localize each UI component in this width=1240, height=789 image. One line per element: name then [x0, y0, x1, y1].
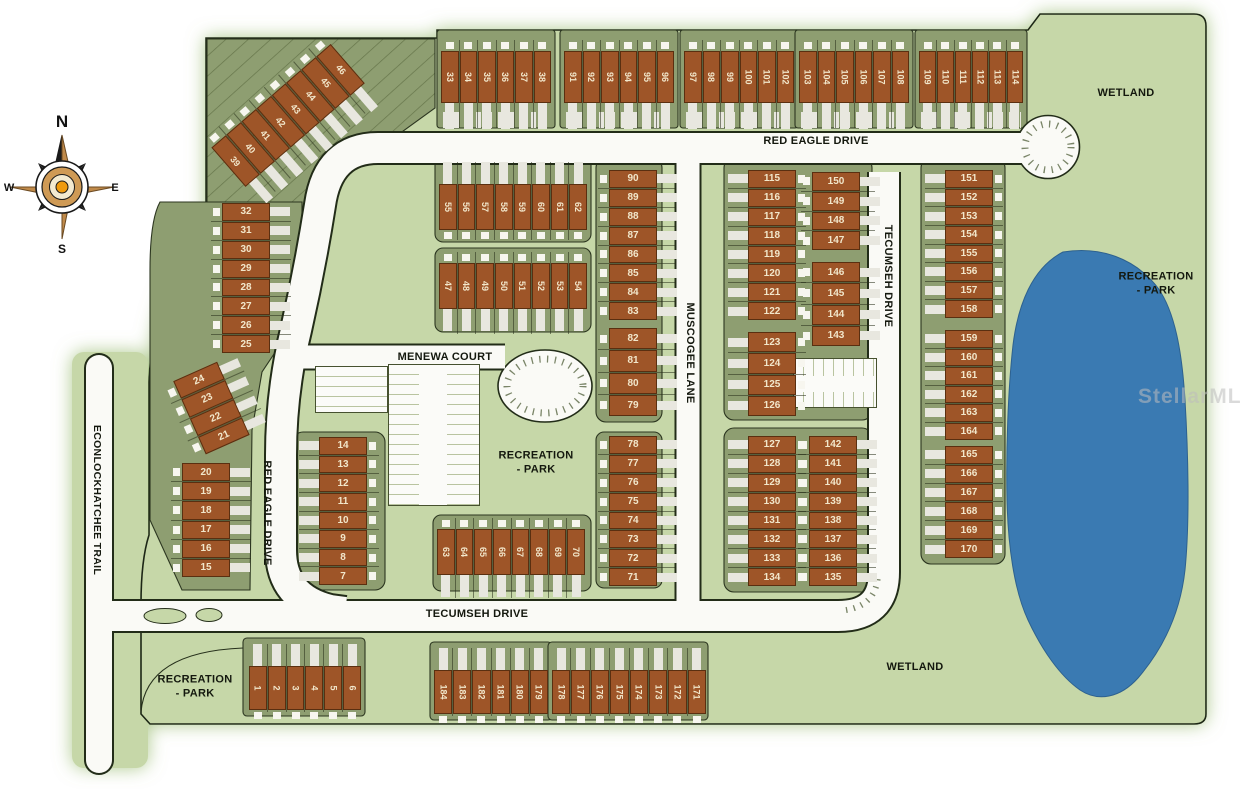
lot-163: 163 — [925, 404, 1003, 423]
lot-parcel: 116 — [748, 189, 796, 207]
lot-88: 88 — [598, 208, 676, 227]
lot-number: 114 — [1010, 70, 1020, 85]
driveway-stub — [728, 307, 748, 316]
lot-number: 157 — [961, 285, 978, 296]
lot-90: 90 — [598, 170, 676, 189]
lot-number: 160 — [961, 352, 978, 363]
driveway-stub — [1010, 103, 1019, 129]
lot-number: 123 — [764, 337, 781, 348]
lot-26: 26 — [211, 316, 291, 335]
lot-147: 147 — [801, 231, 875, 250]
lot-parcel: 70 — [567, 529, 585, 575]
lot-parcel: 140 — [809, 474, 857, 492]
lot-parcel: 126 — [748, 396, 796, 416]
driveway-stub — [227, 377, 249, 393]
lot-number: 29 — [240, 263, 251, 274]
driveway-stub — [725, 103, 734, 129]
utility-pad — [995, 390, 1002, 398]
lot-parcel: 146 — [812, 262, 860, 282]
lot-parcel: 163 — [945, 404, 993, 422]
lot-2: 2 — [268, 644, 287, 712]
street-label-tecumseh-drive-east: TECUMSEH DRIVE — [882, 225, 894, 328]
utility-pad — [446, 42, 454, 49]
driveway-stub — [230, 506, 250, 515]
lot-parcel: 109 — [919, 51, 936, 103]
lot-group-33-38: 333435363738 — [441, 40, 551, 128]
lot-parcel: 19 — [182, 482, 230, 500]
lot-109: 109 — [919, 40, 937, 128]
lot-number: 180 — [515, 684, 525, 699]
lot-parcel: 172 — [668, 670, 686, 714]
area-label-wetland-top: WETLAND — [1097, 87, 1154, 99]
lot-parcel: 35 — [478, 51, 496, 103]
utility-pad — [800, 441, 807, 449]
lot-number: 115 — [764, 173, 780, 184]
compass-east-label: E — [111, 182, 118, 194]
lot-149: 149 — [801, 192, 875, 212]
lot-parcel: 151 — [945, 170, 993, 188]
lot-153: 153 — [925, 207, 1003, 226]
lot-parcel: 159 — [945, 330, 993, 348]
driveway-stub — [925, 353, 945, 362]
driveway-stub — [657, 401, 677, 410]
utility-pad — [213, 283, 220, 291]
lot-number: 159 — [961, 333, 978, 344]
driveway-stub — [803, 103, 812, 129]
lot-166: 166 — [925, 465, 1003, 484]
lot-parcel: 125 — [748, 375, 796, 395]
lot-parcel: 16 — [182, 540, 230, 558]
lot-170: 170 — [925, 540, 1003, 558]
lot-number: 8 — [340, 552, 346, 563]
driveway-stub — [270, 264, 290, 273]
utility-pad — [462, 254, 470, 261]
lot-number: 173 — [653, 684, 663, 699]
lot-72: 72 — [598, 549, 676, 568]
utility-pad — [464, 42, 472, 49]
lot-parcel: 166 — [945, 465, 993, 483]
lot-group-1-6: 123456 — [249, 644, 361, 712]
lot-parcel: 12 — [319, 474, 367, 492]
utility-pad — [822, 42, 830, 49]
lot-168: 168 — [925, 502, 1003, 521]
driveway-stub — [219, 358, 241, 374]
utility-pad — [995, 287, 1002, 295]
lot-parcel: 138 — [809, 512, 857, 530]
utility-pad — [369, 516, 376, 524]
driveway-stub — [925, 427, 945, 436]
utility-pad — [995, 175, 1002, 183]
lot-parcel: 68 — [530, 529, 548, 575]
lot-161: 161 — [925, 367, 1003, 386]
lot-5: 5 — [324, 644, 343, 712]
lot-number: 35 — [482, 72, 492, 82]
lot-number: 73 — [627, 534, 638, 545]
driveway-stub — [925, 334, 945, 343]
lot-parcel: 173 — [649, 670, 667, 714]
lot-group-103-108: 103104105106107108 — [799, 40, 909, 128]
lot-parcel: 67 — [512, 529, 530, 575]
driveway-stub — [654, 648, 663, 670]
lot-number: 136 — [825, 553, 842, 564]
utility-pad — [693, 716, 701, 723]
lot-29: 29 — [211, 260, 291, 279]
driveway-stub — [499, 309, 508, 331]
utility-pad — [516, 520, 524, 527]
lot-parcel: 61 — [551, 184, 569, 230]
lot-number: 90 — [627, 173, 638, 184]
utility-pad — [481, 232, 489, 239]
lot-number: 156 — [961, 266, 978, 277]
lot-number: 59 — [517, 202, 527, 212]
lot-parcel: 105 — [836, 51, 854, 103]
utility-pad — [173, 468, 180, 476]
driveway-stub — [728, 212, 748, 221]
driveway-stub — [536, 162, 545, 184]
lot-parcel: 54 — [569, 263, 587, 309]
lot-parcel: 79 — [609, 395, 657, 416]
lot-number: 126 — [764, 400, 781, 411]
driveway-stub — [538, 103, 547, 129]
utility-pad — [941, 42, 949, 49]
driveway-stub — [925, 267, 945, 276]
lot-178: 178 — [552, 648, 571, 716]
lot-parcel: 56 — [458, 184, 476, 230]
utility-pad — [520, 42, 528, 49]
lot-182: 182 — [472, 648, 491, 716]
lot-63: 63 — [437, 518, 456, 598]
lot-102: 102 — [777, 40, 795, 128]
lot-80: 80 — [598, 373, 676, 395]
utility-pad — [800, 498, 807, 506]
lot-number: 183 — [457, 684, 467, 699]
driveway-stub — [657, 174, 677, 183]
driveway-stub — [860, 268, 880, 277]
utility-pad — [726, 42, 734, 49]
lot-parcel: 131 — [748, 512, 796, 530]
utility-pad — [516, 716, 524, 723]
lot-parcel: 58 — [495, 184, 513, 230]
lot-154: 154 — [925, 226, 1003, 245]
lot-number: 162 — [961, 389, 978, 400]
lot-parcel: 183 — [453, 670, 471, 714]
lot-number: 129 — [764, 477, 781, 488]
utility-pad — [213, 246, 220, 254]
driveway-stub — [299, 516, 319, 525]
lot-parcel: 50 — [495, 263, 513, 309]
lot-82: 82 — [598, 328, 676, 350]
utility-pad — [959, 42, 967, 49]
utility-pad — [213, 227, 220, 235]
lot-number: 17 — [200, 524, 211, 535]
utility-pad — [995, 526, 1002, 534]
driveway-stub — [857, 478, 877, 487]
utility-pad — [538, 42, 546, 49]
lot-parcel: 63 — [437, 529, 455, 575]
lot-3: 3 — [287, 644, 306, 712]
lot-number: 140 — [825, 477, 842, 488]
lot-7: 7 — [299, 567, 379, 585]
driveway-stub — [615, 648, 624, 670]
driveway-stub — [896, 103, 905, 129]
utility-pad — [369, 442, 376, 450]
utility-pad — [600, 307, 607, 315]
lot-parcel: 99 — [721, 51, 739, 103]
utility-pad — [878, 42, 886, 49]
lot-parcel: 117 — [748, 208, 796, 226]
lot-parcel: 8 — [319, 549, 367, 567]
utility-pad — [369, 554, 376, 562]
driveway-stub — [657, 379, 677, 388]
lot-parcel: 93 — [601, 51, 619, 103]
rec-park-line1: RECREATION — [158, 674, 233, 686]
lot-91: 91 — [564, 40, 583, 128]
lot-145: 145 — [801, 283, 875, 304]
lot-75: 75 — [598, 493, 676, 512]
driveway-stub — [348, 644, 357, 666]
lot-number: 54 — [573, 281, 583, 291]
lot-number: 155 — [961, 248, 978, 259]
lot-parcel: 30 — [222, 241, 270, 259]
lot-group-71-78: 7877767574737271 — [598, 436, 676, 586]
lot-number: 106 — [858, 69, 868, 84]
lot-number: 91 — [568, 72, 578, 82]
lot-172: 172 — [668, 648, 687, 716]
lot-110: 110 — [937, 40, 955, 128]
driveway-stub — [925, 212, 945, 221]
driveway-stub — [657, 478, 677, 487]
driveway-stub — [515, 648, 524, 670]
lot-157: 157 — [925, 282, 1003, 301]
lot-61: 61 — [551, 162, 570, 240]
driveway-stub — [568, 103, 577, 129]
lot-number: 33 — [445, 72, 455, 82]
lot-number: 84 — [627, 287, 638, 298]
lot-35: 35 — [478, 40, 497, 128]
driveway-stub — [270, 302, 290, 311]
lot-number: 81 — [627, 355, 638, 366]
driveway-stub — [728, 478, 748, 487]
utility-pad — [995, 193, 1002, 201]
driveway-stub — [728, 535, 748, 544]
driveway-stub — [555, 162, 564, 184]
lot-55: 55 — [439, 162, 458, 240]
street-label-red-eagle-drive-west: RED EAGLE DRIVE — [261, 460, 273, 565]
driveway-stub — [557, 648, 566, 670]
lot-parcel: 154 — [945, 226, 993, 244]
lot-parcel: 97 — [684, 51, 702, 103]
lot-number: 23 — [200, 391, 215, 406]
utility-pad — [535, 716, 543, 723]
driveway-stub — [925, 408, 945, 417]
lot-parcel: 176 — [591, 670, 609, 714]
lot-83: 83 — [598, 302, 676, 320]
lot-78: 78 — [598, 436, 676, 455]
lot-parcel: 81 — [609, 350, 657, 371]
utility-pad — [173, 545, 180, 553]
utility-pad — [481, 254, 489, 261]
lot-32: 32 — [211, 203, 291, 222]
driveway-stub — [781, 103, 790, 129]
driveway-stub — [299, 497, 319, 506]
compass-rose: N W E S — [4, 105, 120, 255]
driveway-stub — [230, 487, 250, 496]
lot-144: 144 — [801, 305, 875, 326]
driveway-stub — [299, 441, 319, 450]
lot-number: 184 — [438, 684, 448, 699]
lot-67: 67 — [512, 518, 531, 598]
utility-pad — [995, 451, 1002, 459]
lot-number: 32 — [240, 206, 251, 217]
driveway-stub — [860, 197, 880, 206]
lot-34: 34 — [460, 40, 479, 128]
lot-parcel: 111 — [955, 51, 971, 103]
utility-pad — [995, 470, 1002, 478]
lot-parcel: 18 — [182, 501, 230, 519]
lot-group-150-147: 150149148147 — [801, 172, 875, 250]
lot-number: 132 — [764, 534, 781, 545]
lot-104: 104 — [818, 40, 837, 128]
lot-parcel: 167 — [945, 484, 993, 502]
lot-parcel: 10 — [319, 512, 367, 530]
lot-parcel: 162 — [945, 386, 993, 404]
parking-lot-center — [388, 364, 480, 506]
lot-177: 177 — [571, 648, 590, 716]
lot-70: 70 — [567, 518, 585, 598]
lot-parcel: 102 — [777, 51, 795, 103]
utility-pad — [600, 335, 607, 343]
driveway-stub — [661, 103, 670, 129]
lot-87: 87 — [598, 227, 676, 246]
lot-146: 146 — [801, 262, 875, 283]
lot-parcel: 6 — [343, 666, 361, 710]
lot-group-146-143: 146145144143 — [801, 262, 875, 346]
lot-number: 75 — [627, 496, 638, 507]
driveway-stub — [840, 103, 849, 129]
driveway-stub — [762, 103, 771, 129]
lot-group-123-126: 123124125126 — [728, 332, 806, 416]
lot-parcel: 49 — [476, 263, 494, 309]
utility-pad — [462, 232, 470, 239]
lot-parcel: 143 — [812, 326, 860, 346]
lot-number: 41 — [258, 128, 272, 142]
lot-143: 143 — [801, 326, 875, 346]
lot-number: 119 — [764, 249, 780, 260]
lot-number: 143 — [828, 330, 845, 341]
utility-pad — [1011, 42, 1019, 49]
lot-number: 88 — [627, 211, 638, 222]
lot-parcel: 95 — [638, 51, 656, 103]
utility-pad — [501, 42, 509, 49]
lot-parcel: 36 — [497, 51, 515, 103]
driveway-stub — [728, 380, 748, 389]
lot-number: 78 — [627, 439, 638, 450]
lot-parcel: 27 — [222, 297, 270, 315]
lot-parcel: 84 — [609, 283, 657, 301]
driveway-stub — [925, 305, 945, 314]
lot-number: 71 — [627, 572, 638, 583]
driveway-stub — [624, 103, 633, 129]
lot-number: 109 — [923, 69, 933, 84]
lot-31: 31 — [211, 222, 291, 241]
lot-parcel: 59 — [514, 184, 532, 230]
lot-number: 3 — [291, 685, 301, 690]
lot-parcel: 86 — [609, 246, 657, 264]
lot-parcel: 112 — [972, 51, 989, 103]
driveway-stub — [534, 648, 543, 670]
lot-parcel: 134 — [748, 568, 796, 586]
lot-54: 54 — [569, 252, 587, 334]
lot-parcel: 28 — [222, 279, 270, 297]
rec-park-line1: RECREATION — [1119, 271, 1194, 283]
utility-pad — [803, 289, 810, 297]
lot-parcel: 177 — [571, 670, 589, 714]
lot-number: 146 — [828, 267, 845, 278]
driveway-stub — [657, 440, 677, 449]
utility-pad — [798, 359, 805, 367]
lot-number: 153 — [961, 211, 978, 222]
lot-158: 158 — [925, 300, 1003, 318]
lot-parcel: 169 — [945, 521, 993, 539]
driveway-stub — [272, 644, 281, 666]
lot-77: 77 — [598, 455, 676, 474]
utility-pad — [439, 716, 447, 723]
utility-pad — [600, 554, 607, 562]
lot-parcel: 124 — [748, 353, 796, 373]
lot-parcel: 128 — [748, 455, 796, 473]
lot-parcel: 11 — [319, 493, 367, 511]
lot-97: 97 — [684, 40, 703, 128]
lot-parcel: 76 — [609, 474, 657, 492]
lot-number: 142 — [825, 439, 842, 450]
lot-number: 67 — [515, 547, 525, 557]
utility-pad — [600, 213, 607, 221]
driveway-stub — [673, 648, 682, 670]
lot-parcel: 20 — [182, 463, 230, 481]
lot-parcel: 170 — [945, 540, 993, 558]
driveway-stub — [462, 309, 471, 331]
lot-parcel: 89 — [609, 189, 657, 207]
lot-parcel: 1 — [249, 666, 267, 710]
lot-number: 164 — [961, 426, 978, 437]
driveway-stub — [657, 459, 677, 468]
driveway-stub — [439, 648, 448, 670]
lot-parcel: 113 — [989, 51, 1006, 103]
driveway-stub — [728, 497, 748, 506]
utility-pad — [995, 489, 1002, 497]
lot-69: 69 — [549, 518, 568, 598]
utility-pad — [995, 507, 1002, 515]
parking-aisle — [794, 376, 876, 392]
lot-number: 50 — [499, 281, 509, 291]
driveway-stub — [595, 648, 604, 670]
lot-173: 173 — [649, 648, 668, 716]
lot-169: 169 — [925, 521, 1003, 540]
lot-number: 163 — [961, 407, 978, 418]
lot-107: 107 — [873, 40, 892, 128]
utility-pad — [577, 716, 585, 723]
lot-57: 57 — [476, 162, 495, 240]
area-label-recreation-park-center: RECREATION - PARK — [481, 449, 591, 478]
lot-parcel: 5 — [324, 666, 342, 710]
driveway-stub — [657, 516, 677, 525]
utility-pad — [518, 232, 526, 239]
driveway-stub — [634, 648, 643, 670]
utility-pad — [600, 288, 607, 296]
lot-4: 4 — [305, 644, 324, 712]
lot-73: 73 — [598, 530, 676, 549]
rec-park-line1: RECREATION — [499, 450, 574, 462]
